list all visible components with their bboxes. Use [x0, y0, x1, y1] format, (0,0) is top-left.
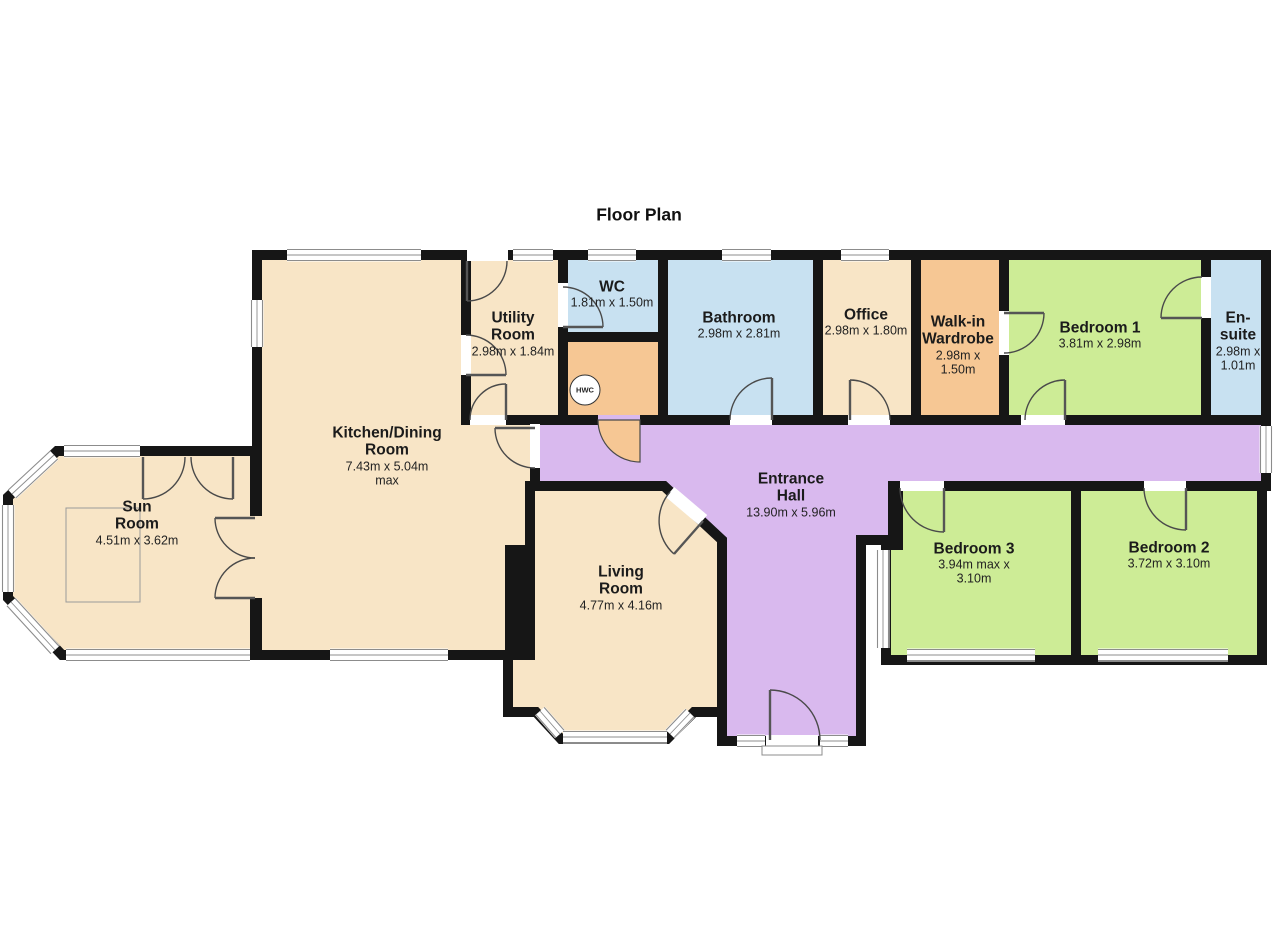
room-dims: 13.90m x 5.96m — [711, 505, 871, 519]
room-name: Bedroom 1 — [1015, 319, 1185, 336]
room-name: WC — [547, 278, 677, 295]
room-name: Bedroom 3 — [889, 540, 1059, 557]
label-utility: Utility Room 2.98m x 1.84m — [458, 310, 568, 359]
label-bedroom2: Bedroom 2 3.72m x 3.10m — [1084, 539, 1254, 570]
label-wardrobe: Walk-in Wardrobe 2.98m x 1.50m — [908, 314, 1008, 377]
floorplan-svg — [0, 0, 1280, 931]
floor-plan-page: Floor Plan Sun Room 4.51m x 3.62m Kitche… — [0, 0, 1280, 931]
room-sun-room-area — [8, 451, 255, 655]
chimney-breast — [505, 545, 533, 658]
room-dims: 3.94m max x 3.10m — [928, 558, 1020, 586]
label-wc: WC 1.81m x 1.50m — [547, 278, 677, 309]
plan-title: Floor Plan — [596, 205, 682, 226]
room-name: Kitchen/Dining Room — [326, 425, 448, 460]
hwc-cylinder: HWC — [570, 375, 601, 406]
room-name: Walk-in Wardrobe — [917, 314, 999, 349]
label-living: Living Room 4.77m x 4.16m — [551, 564, 691, 613]
label-entrance-hall: Entrance Hall 13.90m x 5.96m — [711, 471, 871, 520]
label-kitchen: Kitchen/Dining Room 7.43m x 5.04m max — [307, 425, 467, 488]
room-dims: 3.72m x 3.10m — [1084, 557, 1254, 571]
label-bedroom1: Bedroom 1 3.81m x 2.98m — [1015, 319, 1185, 350]
room-dims: 2.98m x 1.50m — [928, 348, 988, 376]
label-sun-room: Sun Room 4.51m x 3.62m — [67, 499, 207, 548]
room-dims: 3.81m x 2.98m — [1015, 337, 1185, 351]
front-door-threshold — [762, 746, 822, 755]
room-living-area — [508, 486, 722, 739]
room-dims: 1.81m x 1.50m — [547, 296, 677, 310]
room-dims: 2.98m x 1.84m — [458, 344, 568, 358]
room-dims: 4.77m x 4.16m — [551, 598, 691, 612]
room-name: Living Room — [592, 564, 650, 599]
room-bedroom2-area — [1076, 486, 1262, 660]
room-dims: 7.43m x 5.04m max — [337, 459, 437, 487]
room-dims: 4.51m x 3.62m — [67, 533, 207, 547]
room-name: Sun Room — [114, 499, 160, 534]
label-bedroom3: Bedroom 3 3.94m max x 3.10m — [889, 540, 1059, 585]
room-dims: 2.98m x 1.01m — [1210, 344, 1266, 372]
room-name: En-suite — [1217, 310, 1259, 345]
label-ensuite: En-suite 2.98m x 1.01m — [1209, 310, 1267, 373]
room-name: Bedroom 2 — [1084, 539, 1254, 556]
room-name: Utility Room — [486, 310, 540, 345]
room-name: Entrance Hall — [746, 471, 836, 506]
